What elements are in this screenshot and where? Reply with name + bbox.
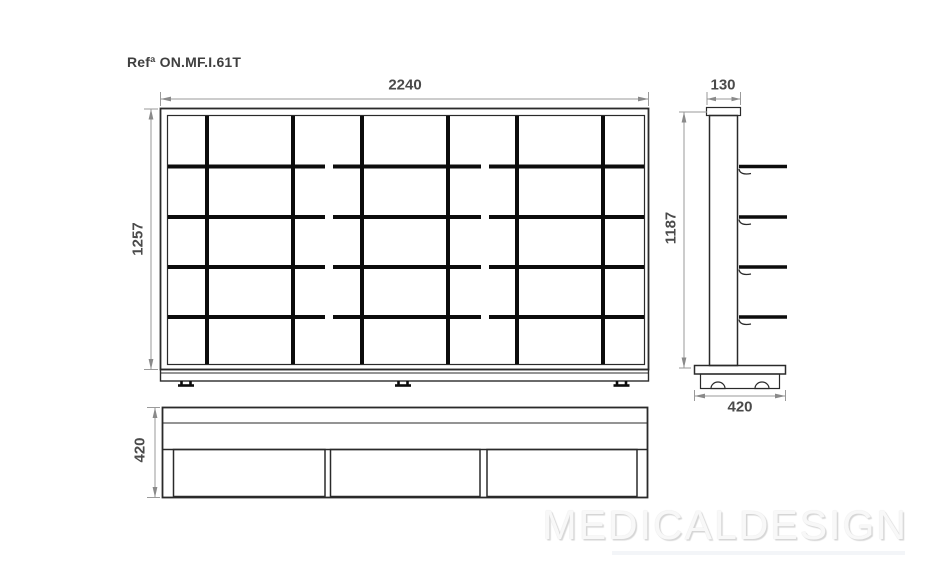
watermark-underline bbox=[612, 551, 905, 555]
technical-drawing bbox=[0, 0, 930, 569]
front-frame-outer bbox=[161, 109, 649, 370]
plan-base-section bbox=[331, 450, 481, 497]
dim-label-plan-depth: 420 bbox=[133, 437, 148, 462]
side-shelf bbox=[739, 217, 787, 224]
side-shelf bbox=[739, 167, 787, 174]
dim-label-front-height: 1257 bbox=[131, 222, 146, 255]
drawing-sheet: Refª ON.MF.I.61T bbox=[0, 0, 930, 569]
side-panel bbox=[710, 116, 738, 366]
side-base-top bbox=[695, 366, 786, 375]
dim-label-front-width: 2240 bbox=[388, 78, 421, 93]
watermark-logo: MEDICALDESIGN bbox=[543, 505, 908, 546]
dim-label-side-top-width: 130 bbox=[710, 78, 735, 93]
shelf-bracket bbox=[739, 320, 751, 325]
plan-view-dimensions bbox=[147, 408, 160, 498]
plan-base-section bbox=[174, 450, 326, 497]
side-shelf bbox=[739, 317, 787, 324]
front-frame-inner bbox=[168, 116, 645, 365]
plan-outline bbox=[163, 408, 648, 498]
side-view bbox=[695, 108, 788, 389]
shelf-bracket bbox=[739, 220, 751, 225]
side-view-dimensions bbox=[679, 92, 786, 401]
shelf-bracket bbox=[739, 270, 751, 275]
side-shelf bbox=[739, 267, 787, 274]
dim-label-side-height: 1187 bbox=[664, 212, 679, 245]
shelf-bracket bbox=[739, 169, 751, 174]
plan-base-section bbox=[487, 450, 637, 497]
side-top-cap bbox=[707, 108, 741, 116]
front-base-strip bbox=[161, 370, 649, 382]
dim-label-side-depth: 420 bbox=[727, 400, 752, 415]
caster bbox=[755, 382, 769, 388]
plan-view bbox=[163, 408, 648, 498]
front-view-dimensions bbox=[144, 92, 649, 370]
front-view bbox=[161, 109, 649, 386]
caster bbox=[711, 382, 725, 388]
